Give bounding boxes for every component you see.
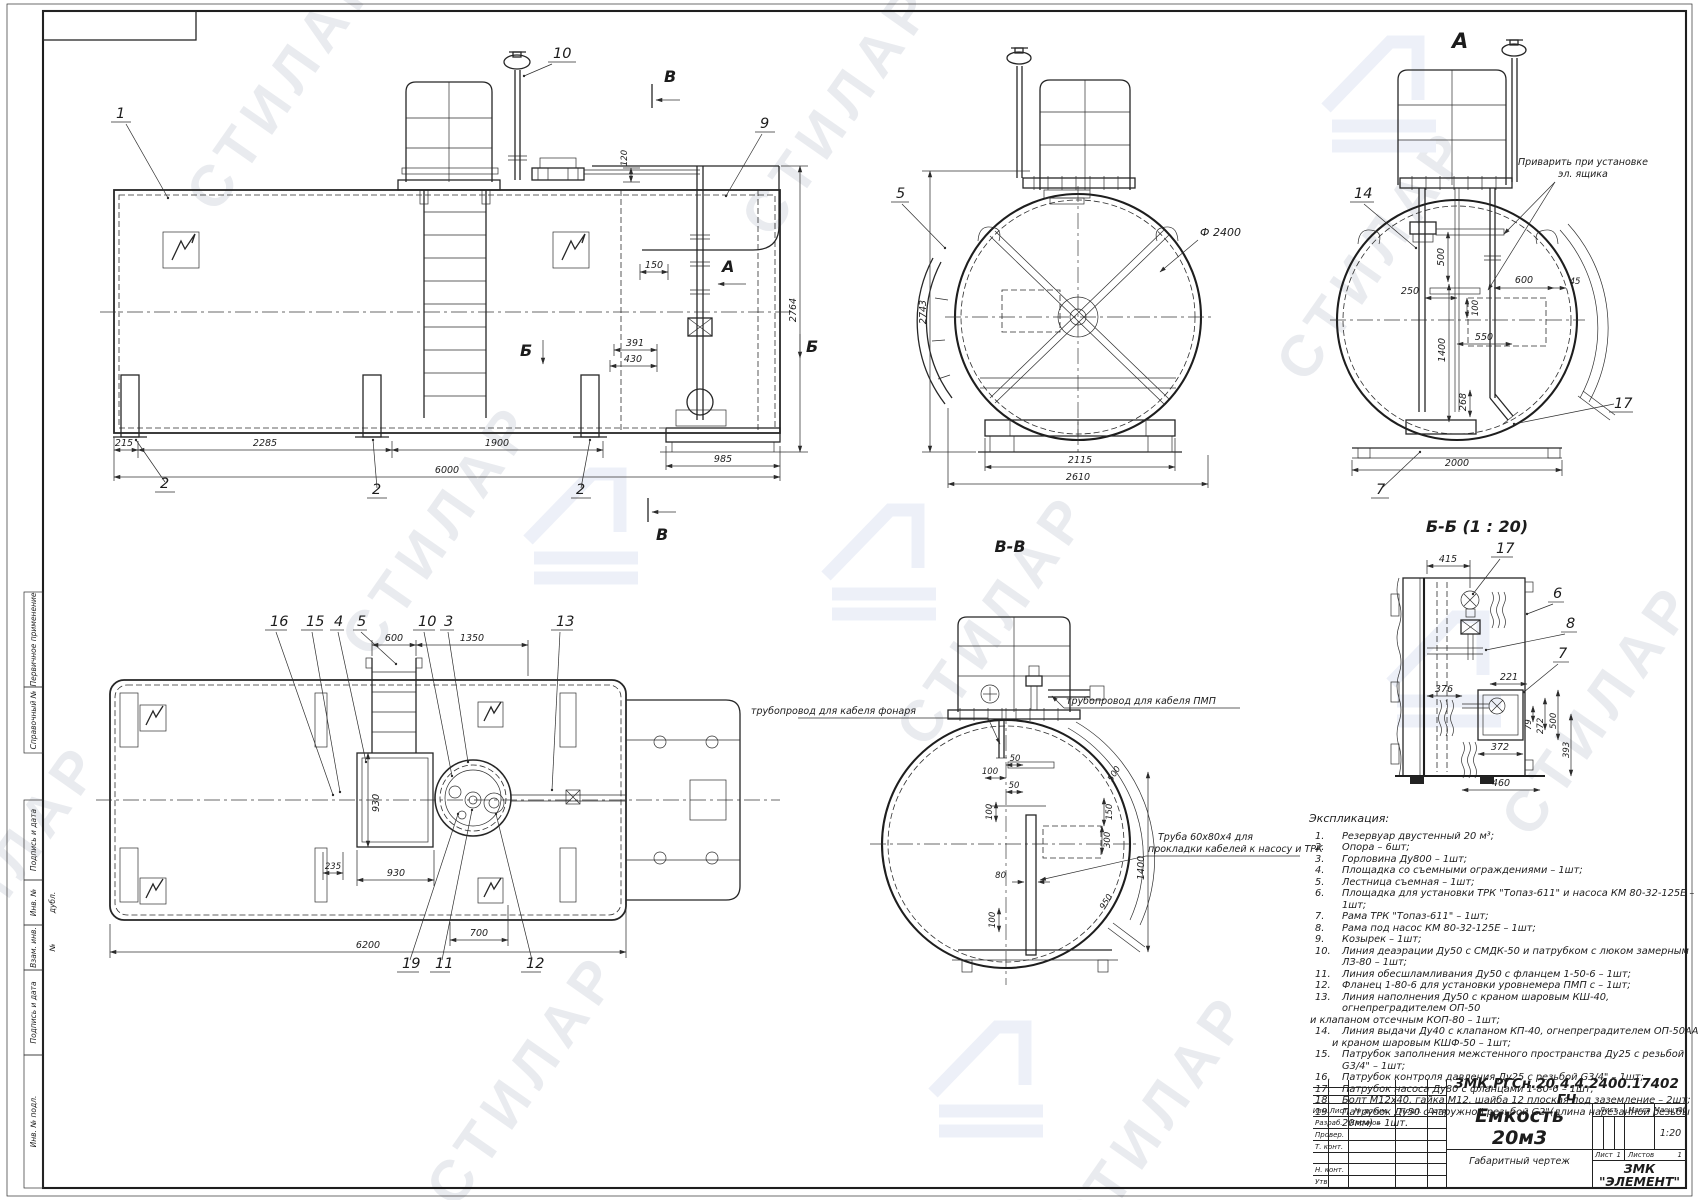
item-text: Патрубок заполнения межстенного простран… — [1342, 1049, 1698, 1072]
dim-1400: 1400 — [1437, 338, 1448, 362]
explication-item: 15.Патрубок заполнения межстенного прост… — [1303, 1049, 1698, 1072]
item-text: Рама под насос КМ 80-32-125Е – 1шт; — [1342, 923, 1698, 935]
explication-item: 5.Лестница съемная – 1шт; — [1303, 877, 1698, 889]
section-bb-title: Б-Б (1 : 20) — [1426, 517, 1528, 536]
dim-600: 600 — [385, 633, 403, 644]
dim-550: 550 — [1475, 332, 1493, 343]
item-number: 4. — [1303, 865, 1342, 877]
explication-item: 7.Рама ТРК "Топаз-611" – 1шт; — [1303, 911, 1698, 923]
explication-item: 1.Резервуар двустенный 20 м³; — [1303, 831, 1698, 843]
section-mark-v-top: В — [664, 67, 676, 86]
document-type: Габаритный чертеж — [1447, 1150, 1593, 1188]
item-number: 2. — [1303, 842, 1342, 854]
sheets-label: Листов — [1628, 1151, 1654, 1159]
col-podp: Подп. — [1395, 1104, 1427, 1117]
dim-600: 600 — [1515, 275, 1533, 286]
callout-7: 7 — [1376, 482, 1386, 498]
item-text: Лестница съемная – 1шт; — [1342, 877, 1698, 889]
dim-1350: 1350 — [460, 633, 484, 644]
callout-8: 8 — [1566, 616, 1575, 632]
dim-45: 45 — [1570, 277, 1581, 287]
explication-item: 2.Опора – 6шт; — [1303, 842, 1698, 854]
dim-1400: 1400 — [1136, 856, 1147, 880]
manhole-fittings — [532, 158, 584, 180]
item-number: 10. — [1303, 946, 1342, 969]
callout-2: 2 — [160, 476, 169, 492]
explication-item-continuation: и краном шаровым КШФ-50 – 1шт; — [1303, 1038, 1698, 1050]
dim-460: 460 — [1492, 778, 1510, 789]
sheet-number: 1 — [1617, 1151, 1621, 1159]
side-view-callouts: 1 10 9 2 2 2 — [111, 46, 775, 498]
callout-5: 5 — [357, 614, 366, 630]
watermark-text: СТИЛАР — [413, 940, 634, 1200]
logo-watermark — [1391, 617, 1501, 721]
diameter-label: Ф 2400 — [1200, 226, 1241, 239]
explication-item: 10.Линия деаэрации Ду50 с СМДК-50 и патр… — [1303, 946, 1698, 969]
explication-item: 9.Козырек – 1шт; — [1303, 934, 1698, 946]
watermark-text: СТИЛАР — [1488, 570, 1698, 847]
dim-1900: 1900 — [485, 438, 509, 449]
explication-item: 14.Линия выдачи Ду40 с клапаном КП-40, о… — [1303, 1026, 1698, 1038]
row-tkont: Т. конт. — [1313, 1141, 1348, 1153]
document-number: ЗМК.РГСн.20.4.4.2400.17402 ГЧ — [1447, 1080, 1686, 1104]
callout-19: 19 — [402, 956, 420, 972]
dim-268: 268 — [1458, 393, 1469, 411]
dim-6200: 6200 — [356, 940, 380, 951]
explication-item: 13.Линия наполнения Ду50 с краном шаровы… — [1303, 992, 1698, 1015]
section-mark-b-right: Б — [806, 337, 818, 356]
plan-view: 600 1350 930 235 930 700 6200 16 15 — [96, 614, 780, 972]
duct-note-line1: Труба 60х80х4 для — [1158, 832, 1253, 843]
item-number: 11. — [1303, 969, 1342, 981]
company-line2: "ЭЛЕМЕНТ" — [1599, 1175, 1680, 1188]
item-text: Резервуар двустенный 20 м³; — [1342, 831, 1698, 843]
dim-80: 80 — [995, 871, 1006, 881]
explication-item: 8.Рама под насос КМ 80-32-125Е – 1шт; — [1303, 923, 1698, 935]
dim-50-mid: 50 — [1009, 781, 1020, 791]
item-text: Козырек – 1шт; — [1342, 934, 1698, 946]
weld-note-line1: Приварить при установке — [1518, 157, 1648, 168]
dim-500: 500 — [1549, 713, 1559, 729]
callout-15: 15 — [306, 614, 324, 630]
callout-11: 11 — [435, 956, 453, 972]
dim-250: 250 — [1401, 286, 1419, 297]
explication-item: 4.Площадка со съемными ограждениями – 1ш… — [1303, 865, 1698, 877]
margin-label-inv-dupl: Инв. № дубл. — [24, 880, 43, 925]
item-text: Фланец 1-80-6 для установки уровнемера П… — [1342, 980, 1698, 992]
drawing-sheet: СТИЛАР СТИЛАР СТИЛАР СТИЛАР СТИЛАР СТИЛА… — [0, 0, 1698, 1200]
sheet-label: Лист — [1595, 1151, 1613, 1159]
explication-item-continuation: и клапаном отсечным КОП-80 – 1шт; — [1303, 1015, 1698, 1027]
dim-415: 415 — [1439, 554, 1457, 565]
item-number: 15. — [1303, 1049, 1342, 1072]
vv-dimensions: 100 50 50 100 150 300 80 100 500 1400 95… — [982, 754, 1148, 952]
margin-label-vzam-inv: Взам. инв. № — [24, 925, 43, 970]
margin-label-sign-date-1: Подпись и дата — [24, 800, 43, 880]
logo-watermark — [1326, 42, 1436, 146]
item-text: и краном шаровым КШФ-50 – 1шт; — [1332, 1038, 1698, 1050]
item-text: Площадка для установки ТРК "Топаз-611" и… — [1342, 888, 1698, 911]
logo-watermark — [826, 510, 936, 614]
callout-1: 1 — [116, 106, 125, 122]
title-block: Изм. Лист № докум. Подп. Дата Разраб. Кл… — [1313, 1080, 1686, 1188]
section-mark-b-left: Б — [520, 341, 532, 360]
section-mark-v-bottom: В — [656, 525, 668, 544]
explication-title: Экспликация: — [1309, 813, 1698, 825]
item-text: Линия выдачи Ду40 с клапаном КП-40, огне… — [1342, 1026, 1698, 1038]
item-text: Опора – 6шт; — [1342, 842, 1698, 854]
vent-pipe — [1007, 48, 1031, 178]
dim-391: 391 — [626, 338, 644, 349]
row-razrab: Разраб. — [1313, 1117, 1348, 1129]
item-text: и клапаном отсечным КОП-80 – 1шт; — [1310, 1015, 1698, 1027]
plan-dimensions: 600 1350 930 235 930 700 6200 — [110, 633, 626, 958]
vent-line — [504, 52, 530, 180]
dim-2115: 2115 — [1068, 455, 1092, 466]
internal-ladder — [420, 190, 490, 418]
dim-300: 300 — [1103, 832, 1113, 848]
col-izm: Изм. — [1313, 1104, 1329, 1117]
top-left-stamp-box — [43, 11, 196, 40]
section-vv-title: В-В — [994, 537, 1025, 556]
callout-16: 16 — [270, 614, 288, 630]
dim-2743: 2743 — [918, 300, 929, 324]
plan-grounding — [140, 702, 503, 904]
top-railing — [1023, 80, 1135, 204]
callout-2: 2 — [576, 482, 585, 498]
item-number: 14. — [1303, 1026, 1342, 1038]
sheets-count: 1 — [1678, 1151, 1682, 1159]
weld-note-line2: эл. ящика — [1558, 169, 1608, 180]
removable-ladder — [917, 258, 952, 404]
plan-manhole — [435, 760, 626, 836]
margin-label-ref-no: Справочный № — [24, 687, 43, 753]
dim-100-mid: 100 — [985, 804, 995, 820]
item-text: Горловина Ду800 – 1шт; — [1342, 854, 1698, 866]
item-text: Линия деаэрации Ду50 с СМДК-50 и патрубк… — [1342, 946, 1698, 969]
margin-label-sign-date-2: Подпись и дата — [24, 970, 43, 1055]
item-number: 9. — [1303, 934, 1342, 946]
dim-500: 500 — [1436, 248, 1447, 266]
plan-supports — [120, 693, 576, 902]
dim-430: 430 — [624, 354, 642, 365]
callout-5: 5 — [896, 186, 905, 202]
item-text: Рама ТРК "Топаз-611" – 1шт; — [1342, 911, 1698, 923]
col-doc: № докум. — [1348, 1104, 1395, 1117]
callout-7: 7 — [1558, 646, 1568, 662]
margin-label-inv-podl: Инв. № подл. — [24, 1055, 43, 1188]
dim-150: 150 — [1105, 804, 1115, 820]
designer-name: Клочков — [1348, 1117, 1395, 1129]
dim-930: 930 — [387, 868, 405, 879]
dim-2764: 2764 — [788, 298, 799, 322]
dim-150: 150 — [645, 260, 663, 271]
dim-221: 221 — [1500, 672, 1518, 683]
watermark-text: СТИЛАР — [1263, 115, 1484, 392]
item-number: 1. — [1303, 831, 1342, 843]
watermark-text: СТИЛАР — [1043, 980, 1264, 1200]
lit-label: Лист — [1593, 1104, 1625, 1117]
callout-12: 12 — [526, 956, 544, 972]
dim-100-top: 100 — [982, 767, 998, 777]
item-number: 7. — [1303, 911, 1342, 923]
callout-13: 13 — [556, 614, 574, 630]
duct-note-line2: прокладки кабелей к насосу и ТРК — [1148, 844, 1324, 855]
view-mark-a: А — [720, 257, 734, 276]
item-number: 8. — [1303, 923, 1342, 935]
grounding-symbol — [163, 232, 589, 268]
callout-17: 17 — [1614, 396, 1633, 412]
vv-deck-fittings — [981, 666, 1104, 758]
col-list: Лист — [1329, 1104, 1348, 1117]
item-number: 5. — [1303, 877, 1342, 889]
scale-value: 1:20 — [1655, 1117, 1686, 1150]
saddle-frame — [978, 420, 1182, 452]
section-marks: В В А Б Б — [520, 67, 818, 544]
callout-3: 3 — [444, 614, 453, 630]
item-number: 12. — [1303, 980, 1342, 992]
dim-235: 235 — [325, 862, 341, 872]
dim-6000: 6000 — [435, 465, 459, 476]
col-data: Дата — [1427, 1104, 1447, 1117]
dim-2000: 2000 — [1445, 458, 1469, 469]
dim-700: 700 — [470, 928, 488, 939]
scale-label: Масштаб — [1655, 1104, 1686, 1117]
item-number: 3. — [1303, 854, 1342, 866]
company-line1: ЗМК — [1624, 1162, 1656, 1175]
dim-100: 100 — [1471, 300, 1481, 316]
dim-393: 393 — [1562, 742, 1572, 758]
callout-17: 17 — [1496, 541, 1515, 557]
dim-930-vertical: 930 — [371, 794, 382, 812]
logo-watermark — [933, 1027, 1043, 1131]
dim-376: 376 — [1435, 684, 1453, 695]
callout-10: 10 — [418, 614, 436, 630]
callout-9: 9 — [760, 116, 769, 132]
explication-item: 3.Горловина Ду800 – 1шт; — [1303, 854, 1698, 866]
dim-100-bot: 100 — [988, 912, 998, 928]
explication-item: 12.Фланец 1-80-6 для установки уровнемер… — [1303, 980, 1698, 992]
dim-79: 79 — [1524, 719, 1534, 730]
dim-50-top: 50 — [1010, 754, 1021, 764]
margin-label-primary-use: Первичное применение — [24, 592, 43, 687]
item-text: Линия наполнения Ду50 с краном шаровым К… — [1342, 992, 1698, 1015]
row-nkont: Н. конт. — [1313, 1164, 1348, 1176]
watermark-text: СТИЛАР — [173, 0, 394, 222]
item-text: Линия обесшламливания Ду50 с фланцем 1-5… — [1342, 969, 1698, 981]
dim-372: 372 — [1491, 742, 1509, 753]
dim-120: 120 — [620, 150, 630, 166]
dim-985: 985 — [714, 454, 732, 465]
dim-2285: 2285 — [253, 438, 277, 449]
cable-note-right: трубопровод для кабеля ПМП — [1066, 696, 1216, 707]
item-number: 13. — [1303, 992, 1342, 1015]
item-text: Площадка со съемными ограждениями – 1шт; — [1342, 865, 1698, 877]
product-title: Емкость 20м3 — [1447, 1104, 1593, 1150]
callout-6: 6 — [1553, 586, 1562, 602]
row-utv: Утв. — [1313, 1176, 1348, 1188]
front-view-annotations: 5 Ф 2400 — [891, 186, 1241, 272]
explication-item: 6.Площадка для установки ТРК "Топаз-611"… — [1303, 888, 1698, 911]
row-prover: Провер. — [1313, 1129, 1348, 1141]
dim-272: 272 — [1536, 718, 1546, 734]
callout-4: 4 — [334, 614, 343, 630]
view-a-title: А — [1450, 29, 1468, 53]
dim-215: 215 — [115, 438, 133, 449]
plan-ladder-platform — [357, 658, 433, 847]
dim-2610: 2610 — [1066, 472, 1090, 483]
dim-500: 500 — [1106, 765, 1123, 784]
callout-14: 14 — [1354, 186, 1372, 202]
watermark-text: СТИЛАР — [0, 730, 117, 1007]
massa-label: Масса — [1625, 1104, 1655, 1117]
item-number: 6. — [1303, 888, 1342, 911]
platform-railing — [398, 82, 500, 190]
company-name: ЗМК "ЭЛЕМЕНТ" — [1593, 1161, 1686, 1188]
cable-note-left: трубопровод для кабеля фонаря — [751, 706, 916, 717]
callout-10: 10 — [553, 46, 571, 62]
explication-item: 11.Линия обесшламливания Ду50 с фланцем … — [1303, 969, 1698, 981]
front-view: 5 Ф 2400 2743 2115 2610 — [891, 48, 1241, 488]
